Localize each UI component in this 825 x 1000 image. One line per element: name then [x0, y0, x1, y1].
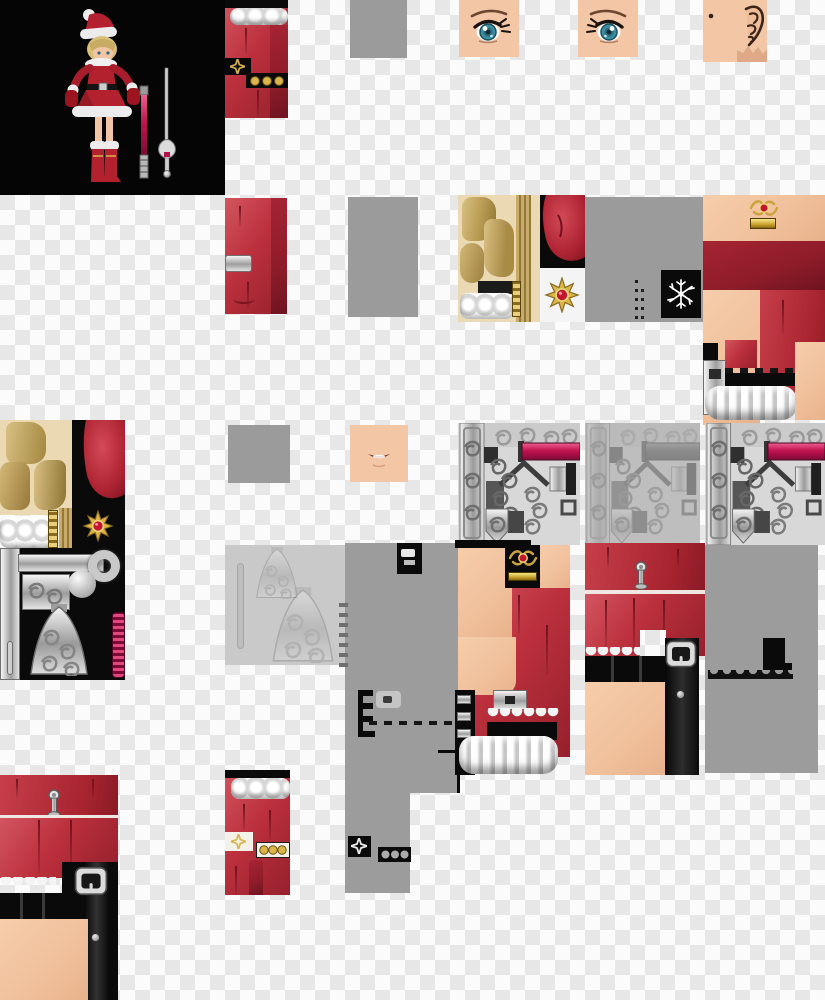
fabric-crease [235, 866, 237, 895]
hardware-step [457, 695, 471, 704]
strap-rivet [676, 690, 685, 699]
sword-guard-texture-2 [705, 423, 825, 545]
belt-band [585, 656, 667, 682]
dress-texture-c [0, 775, 118, 1000]
fabric-crease [518, 595, 520, 635]
fabric-crease [243, 804, 245, 830]
red-cuff-texture [225, 198, 287, 314]
bracket-tooth [358, 690, 373, 696]
eye-art-right [578, 0, 638, 57]
red-fabric-bulge [80, 420, 125, 506]
fabric-crease [677, 549, 679, 567]
gray-block-upper [345, 543, 458, 793]
fabric-crease [782, 300, 784, 334]
button-strip-gray [378, 847, 411, 862]
ear-art [703, 0, 767, 62]
gray-filler-3 [585, 197, 703, 322]
fur-band [0, 516, 54, 548]
gray-filler-2 [348, 197, 418, 317]
sword-guard-texture-1 [458, 423, 580, 545]
black-edge [225, 0, 288, 8]
red-bit [725, 340, 757, 368]
hair-strand-strip [59, 508, 72, 548]
silver-bar [0, 548, 20, 680]
keyhole-pin [633, 560, 649, 590]
dress-texture-a [455, 540, 570, 775]
red-fabric-bulge [540, 195, 585, 268]
bracket-tooth [358, 703, 373, 709]
sword-guard-texture-faded [585, 423, 700, 545]
snowflake-tile [661, 270, 701, 318]
skin-panel [0, 919, 88, 1000]
magenta-grip-coil [112, 612, 125, 678]
fur-trim [231, 778, 290, 799]
gold-chain [512, 281, 521, 317]
hair-panel [0, 420, 72, 515]
gold-button-band [256, 842, 290, 858]
fabric-crease [257, 90, 259, 118]
fabric-crease [269, 810, 271, 840]
stitch-dots [635, 279, 638, 319]
eye-texture-left [459, 0, 519, 57]
texture-atlas-canvas [0, 0, 825, 1000]
belt-buckle [74, 866, 108, 896]
faded-guard-texture [225, 545, 350, 665]
gray-block-right [705, 545, 818, 773]
hair-texture [458, 195, 540, 322]
belt-strap [665, 638, 699, 775]
skin-panel [458, 637, 516, 695]
black-bit [703, 343, 718, 360]
gray-block-lower [345, 780, 410, 893]
snowflake-icon [667, 278, 695, 310]
fabric-crease [16, 779, 18, 797]
skin-strip [795, 342, 825, 420]
gray-filler-4 [228, 425, 290, 483]
gold-buttons [250, 76, 284, 86]
red-band [703, 241, 825, 290]
belt-seam [20, 893, 23, 919]
button-strip [246, 73, 288, 88]
gold-flower-ornament [82, 510, 114, 542]
shaded-red-column [271, 198, 287, 314]
silver-pommel-ball [68, 570, 96, 598]
silver-cuff-band [225, 255, 252, 272]
hair-sword-texture-left [0, 420, 125, 680]
transparent-hole [640, 630, 666, 656]
dashed-stitch-line [369, 721, 458, 725]
ear-texture [703, 0, 767, 62]
fabric-crease [607, 547, 609, 567]
skin-corner [540, 545, 570, 588]
eye-texture-right [578, 0, 638, 57]
metal-guard-art-faded [585, 423, 700, 545]
belt-buckle [665, 640, 697, 668]
skin-panel [458, 548, 512, 637]
metal-guard-art [705, 423, 825, 545]
glyph-mark [401, 549, 415, 557]
torso-texture-right [703, 195, 825, 425]
fabric-crease [38, 820, 40, 874]
faded-slit [237, 563, 244, 649]
fabric-fold-line [233, 294, 255, 304]
black-band [0, 893, 62, 919]
engraving-swirls [27, 579, 67, 607]
silver-clamp [493, 690, 527, 710]
fur-trim [230, 8, 288, 25]
scalloped-black-band [708, 670, 793, 679]
sword-parts-panel [0, 548, 125, 680]
mouth-art [350, 425, 408, 482]
star-emblem-icon [351, 838, 367, 854]
bar-slit [7, 641, 13, 675]
hair-lock [0, 462, 30, 510]
fabric-crease [239, 206, 241, 226]
hair-lock [6, 422, 46, 464]
hardware-slot [709, 369, 721, 379]
dress-texture-b [585, 543, 705, 775]
gold-buttons [259, 845, 287, 855]
gray-filler-1 [350, 0, 407, 58]
fabric-crease [245, 28, 247, 54]
fabric-crease [546, 625, 548, 675]
black-band [725, 373, 795, 386]
clamp-slot [505, 696, 515, 704]
belt-seam [42, 893, 45, 919]
engraved-bell-guard [24, 604, 94, 676]
strap-rivet [91, 933, 100, 942]
fabric-crease [633, 598, 635, 650]
white-ruffle-edge [0, 877, 56, 893]
red-bulge-ornament [540, 195, 585, 322]
gold-band [508, 572, 537, 581]
eye-art-left [459, 0, 519, 57]
clasp-tile [505, 545, 540, 588]
hair-lock [484, 219, 514, 277]
star-band [225, 832, 253, 851]
bracket-bar [358, 690, 363, 736]
white-fur-roll [705, 386, 797, 420]
buckle-slot [383, 696, 392, 703]
star-glyph-tile [348, 836, 371, 857]
fabric-crease [605, 600, 607, 648]
hair-lock [34, 460, 66, 510]
buckle-blob [376, 691, 401, 708]
gold-band [750, 218, 776, 229]
gold-flower-ornament [544, 277, 580, 313]
fabric-crease [92, 779, 94, 797]
faded-bell-art [263, 587, 343, 663]
character-preview [0, 0, 225, 195]
mouth-texture [350, 425, 408, 482]
white-panel [540, 268, 585, 322]
white-ruffle-edge [487, 708, 559, 722]
belt-seam [639, 656, 642, 682]
hardware-step [457, 712, 471, 721]
boot-texture [225, 770, 290, 895]
character-render [0, 0, 225, 195]
belt-seam [611, 656, 614, 682]
skin-panel [585, 682, 665, 775]
metal-guard-art [458, 423, 580, 545]
shaded-red-column [270, 25, 288, 118]
glyph-mark [404, 560, 415, 565]
gold-clasp-ornament [506, 548, 540, 568]
black-panel [72, 420, 125, 550]
white-fur-roll [459, 736, 558, 774]
black-edge [225, 770, 290, 778]
gray-buttons [381, 850, 409, 859]
bracket-foot [358, 731, 375, 737]
stitch-dots [641, 283, 644, 319]
hardware-glyph-tile [397, 543, 422, 574]
gold-star-emblem [231, 834, 246, 849]
fur-puffs [460, 293, 514, 319]
gold-clasp-ornament [747, 198, 781, 218]
red-sleeve-texture-top [225, 0, 288, 118]
gold-chain [48, 510, 58, 548]
edge-notches [339, 603, 348, 667]
boot-shaft-shadow [249, 860, 263, 895]
keyhole-pin [46, 788, 62, 818]
gold-star-emblem [230, 59, 245, 74]
hair-lock [460, 243, 484, 283]
